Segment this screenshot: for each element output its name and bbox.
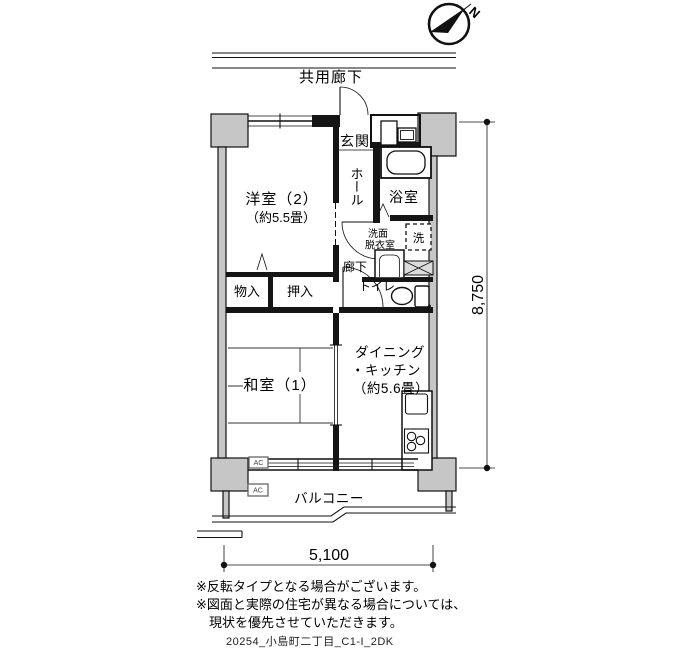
label-dining-line2: ・キッチン (351, 363, 421, 378)
ac-box-1: AC (249, 457, 268, 468)
dimension-horizontal: 5,100 (221, 545, 436, 572)
toilet-bowl (392, 286, 431, 307)
floor-plan-page: N 共用廊下 (0, 0, 700, 650)
notes-block: ※反転タイプとなる場合がございます。 ※図面と実際の住宅が異なる場合については、… (196, 578, 526, 632)
label-storage: 物入 (234, 284, 260, 299)
label-washroom-line2: 脱衣室 (365, 239, 395, 252)
kitchen-counter (402, 391, 432, 470)
entrance-door-arc (340, 87, 368, 115)
floor-plan-drawing: N 共用廊下 (0, 0, 700, 650)
dimension-vertical: 8,750 (459, 119, 495, 471)
common-corridor-label: 共用廊下 (299, 69, 363, 86)
closet-folding-door-mark (257, 254, 267, 270)
common-corridor-lines (212, 53, 456, 68)
balcony-side-wall-left (223, 491, 229, 518)
label-western-room-size: （約5.5畳） (246, 210, 316, 225)
column-top-left (211, 114, 248, 147)
japanese-room-fusuma (330, 345, 342, 425)
label-washroom-line1: 洗面 (368, 228, 388, 240)
label-japanese-room: 和室（1） (243, 377, 316, 394)
label-closet: 押入 (287, 284, 313, 299)
label-bathroom: 浴室 (389, 189, 419, 205)
column-bottom-left (211, 458, 248, 491)
note-line-1: ※反転タイプとなる場合がございます。 (196, 578, 526, 596)
window-balcony (248, 458, 418, 471)
label-western-room: 洋室（2） (245, 191, 318, 208)
label-toilet: トイレ (359, 280, 395, 294)
label-dining-line1: ダイニング (355, 345, 425, 360)
label-hall: ホール (349, 167, 364, 206)
pipe-shaft-box (404, 261, 433, 275)
wall-left (218, 147, 226, 458)
label-balcony: バルコニー (294, 491, 364, 506)
kitchen-sink (406, 394, 428, 414)
dimension-horizontal-value: 5,100 (309, 547, 349, 564)
ac-box-1-label: AC (254, 460, 264, 467)
balcony-side-wall-right (446, 491, 452, 511)
footer-code: 20254_小島町二丁目_C1-I_2DK (226, 633, 394, 649)
balcony-railing (197, 507, 456, 538)
north-arrow: N (429, 4, 483, 44)
entrance-door (340, 87, 368, 115)
window-top (248, 114, 312, 129)
dimension-vertical-value: 8,750 (470, 275, 487, 315)
bathtub (381, 147, 431, 178)
note-line-2: ※図面と実際の住宅が異なる場合については、 (196, 596, 526, 614)
label-laundry: 洗 (413, 232, 425, 245)
note-line-3: 現状を優先させていただきます。 (196, 614, 526, 632)
vanity-sink (375, 250, 404, 278)
label-dining-line3: （約5.6畳） (353, 381, 429, 396)
label-corridor: 廊下 (343, 259, 367, 274)
ac-box-2: AC (248, 484, 268, 496)
label-genkan: 玄関 (340, 133, 370, 149)
stove (405, 429, 429, 453)
ac-box-2-label: AC (253, 488, 263, 495)
